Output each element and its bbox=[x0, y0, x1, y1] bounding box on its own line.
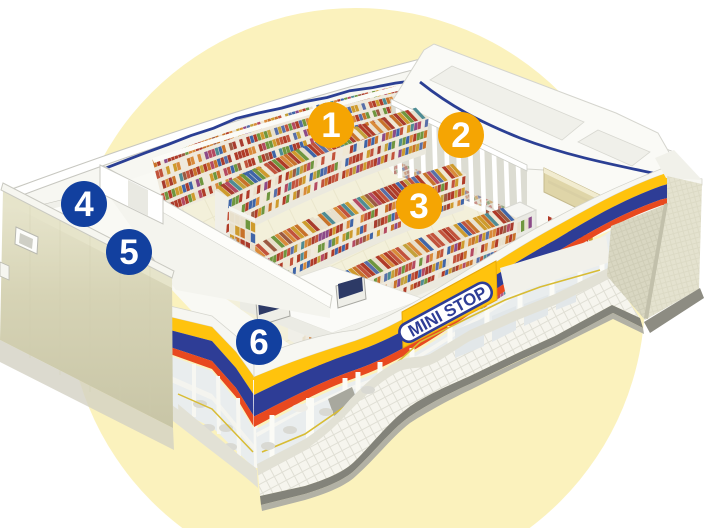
svg-text:3: 3 bbox=[409, 187, 428, 226]
svg-text:5: 5 bbox=[119, 233, 138, 272]
svg-text:4: 4 bbox=[74, 185, 94, 224]
svg-text:2: 2 bbox=[451, 116, 470, 155]
svg-text:1: 1 bbox=[321, 106, 340, 145]
svg-text:6: 6 bbox=[249, 323, 268, 362]
